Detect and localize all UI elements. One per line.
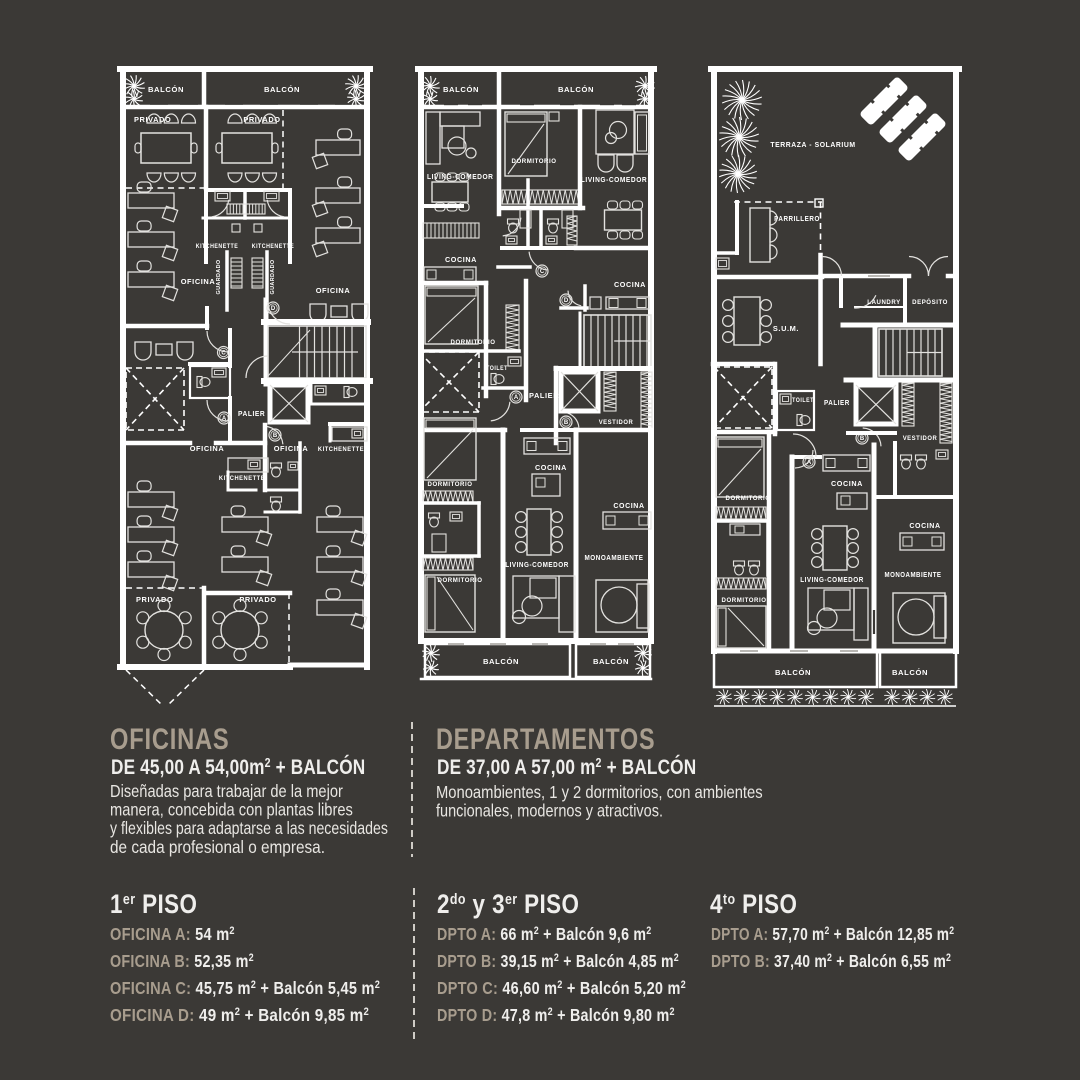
- svg-text:GUARDADO: GUARDADO: [270, 260, 276, 295]
- svg-text:MONOAMBIENTE: MONOAMBIENTE: [884, 572, 941, 580]
- svg-text:DORMITORIO: DORMITORIO: [451, 339, 496, 346]
- svg-text:OFICINAS: OFICINAS: [110, 722, 229, 755]
- svg-text:GUARDADO: GUARDADO: [216, 260, 222, 295]
- svg-text:A: A: [514, 395, 519, 401]
- svg-text:KITCHENETTE: KITCHENETTE: [252, 244, 294, 250]
- svg-text:DORMITORIO: DORMITORIO: [726, 495, 771, 502]
- svg-text:COCINA: COCINA: [445, 255, 477, 264]
- svg-text:B: B: [564, 420, 569, 426]
- svg-text:BALCÓN: BALCÓN: [443, 85, 479, 94]
- svg-text:BALCÓN: BALCÓN: [775, 668, 811, 677]
- svg-text:funcionales, modernos y atract: funcionales, modernos y atractivos.: [436, 801, 663, 821]
- svg-text:de cada profesional o empresa.: de cada profesional o empresa.: [110, 837, 325, 857]
- svg-text:manera, concebida con plantas: manera, concebida con plantas libres: [110, 800, 353, 820]
- svg-text:DPTO D: 47,8 m2​ + Balcón 9,80: DPTO D: 47,8 m2​ + Balcón 9,80 m2​: [437, 1006, 675, 1025]
- svg-text:Monoambientes, 1 y 2 dormitori: Monoambientes, 1 y 2 dormitorios, con am…: [436, 783, 763, 803]
- svg-text:PALIER: PALIER: [824, 400, 850, 407]
- svg-text:COCINA: COCINA: [613, 503, 644, 510]
- svg-text:PRIVADO: PRIVADO: [136, 595, 173, 604]
- svg-text:LIVING-COMEDOR: LIVING-COMEDOR: [581, 177, 648, 184]
- svg-text:COCINA: COCINA: [614, 280, 646, 289]
- svg-text:LAUNDRY: LAUNDRY: [867, 299, 901, 306]
- svg-text:TOILET: TOILET: [486, 366, 508, 372]
- svg-text:COCINA: COCINA: [831, 479, 863, 488]
- svg-text:B: B: [860, 436, 865, 442]
- svg-text:COCINA: COCINA: [909, 523, 940, 530]
- svg-text:BALCÓN: BALCÓN: [892, 668, 928, 677]
- svg-text:OFICINA A: 54 m2​: OFICINA A: 54 m2​: [110, 925, 235, 945]
- svg-text:PARRILLERO: PARRILLERO: [774, 216, 820, 223]
- svg-text:D: D: [564, 298, 569, 304]
- svg-text:BALCÓN: BALCÓN: [483, 657, 519, 666]
- svg-text:KITCHENETTE: KITCHENETTE: [219, 475, 265, 482]
- svg-text:OFICINA: OFICINA: [274, 444, 309, 453]
- svg-text:DEPÓSITO: DEPÓSITO: [912, 297, 948, 306]
- svg-text:LIVING-COMEDOR: LIVING-COMEDOR: [800, 577, 864, 584]
- svg-text:BALCÓN: BALCÓN: [558, 85, 594, 94]
- svg-text:OFICINA D: 49 m2​ + Balcón 9,8: OFICINA D: 49 m2​ + Balcón 9,85 m2​: [110, 1006, 369, 1025]
- svg-text:B: B: [273, 433, 278, 439]
- svg-text:DE 45,00 A 54,00m2​ + BALCÓN: DE 45,00 A 54,00m2​ + BALCÓN: [111, 755, 365, 779]
- svg-text:D: D: [271, 306, 276, 312]
- svg-text:OFICINA: OFICINA: [316, 286, 351, 295]
- svg-text:OFICINA: OFICINA: [190, 444, 225, 453]
- svg-text:BALCÓN: BALCÓN: [264, 85, 300, 94]
- svg-text:DORMITORIO: DORMITORIO: [722, 597, 767, 604]
- svg-text:VESTIDOR: VESTIDOR: [903, 435, 938, 442]
- svg-text:BALCÓN: BALCÓN: [593, 657, 629, 666]
- svg-text:PALIER: PALIER: [529, 391, 559, 400]
- svg-text:DORMITORIO: DORMITORIO: [428, 481, 473, 488]
- svg-text:TOILET: TOILET: [792, 398, 814, 404]
- svg-text:S.U.M.: S.U.M.: [773, 324, 799, 333]
- svg-text:DPTO A: 66 m2​ + Balcón 9,6 m2: DPTO A: 66 m2​ + Balcón 9,6 m2​: [437, 925, 652, 944]
- svg-text:Diseñadas para trabajar de la: Diseñadas para trabajar de la mejor: [110, 782, 343, 802]
- svg-text:DE 37,00 A 57,00 m2​ + BALCÓN: DE 37,00 A 57,00 m2​ + BALCÓN: [437, 755, 696, 779]
- svg-text:KITCHENETTE: KITCHENETTE: [196, 244, 238, 250]
- svg-text:OFICINA C: 45,75 m2​ + Balcón: OFICINA C: 45,75 m2​ + Balcón 5,45 m2​: [110, 979, 380, 999]
- svg-text:TERRAZA - SOLARIUM: TERRAZA - SOLARIUM: [770, 142, 855, 149]
- svg-text:OFICINA: OFICINA: [181, 277, 216, 286]
- svg-text:DORMITORIO: DORMITORIO: [512, 158, 557, 165]
- svg-text:MONOAMBIENTE: MONOAMBIENTE: [584, 555, 643, 562]
- svg-text:BALCÓN: BALCÓN: [148, 85, 184, 94]
- svg-text:C: C: [540, 269, 545, 275]
- svg-text:DEPARTAMENTOS: DEPARTAMENTOS: [436, 722, 655, 755]
- svg-text:PALIER: PALIER: [238, 411, 265, 418]
- svg-text:y flexibles para adaptarse a l: y flexibles para adaptarse a las necesid…: [110, 819, 388, 839]
- svg-text:DORMITORIO: DORMITORIO: [438, 577, 483, 584]
- svg-text:COCINA: COCINA: [535, 463, 567, 472]
- svg-text:VESTIDOR: VESTIDOR: [599, 419, 634, 426]
- svg-text:DPTO A: 57,70 m2​ + Balcón 12,: DPTO A: 57,70 m2​ + Balcón 12,85 m2​: [711, 925, 954, 944]
- svg-text:KITCHENETTE: KITCHENETTE: [318, 446, 364, 453]
- svg-text:OFICINA B: 52,35 m2​: OFICINA B: 52,35 m2​: [110, 952, 254, 971]
- svg-text:LIVING-COMEDOR: LIVING-COMEDOR: [505, 562, 569, 569]
